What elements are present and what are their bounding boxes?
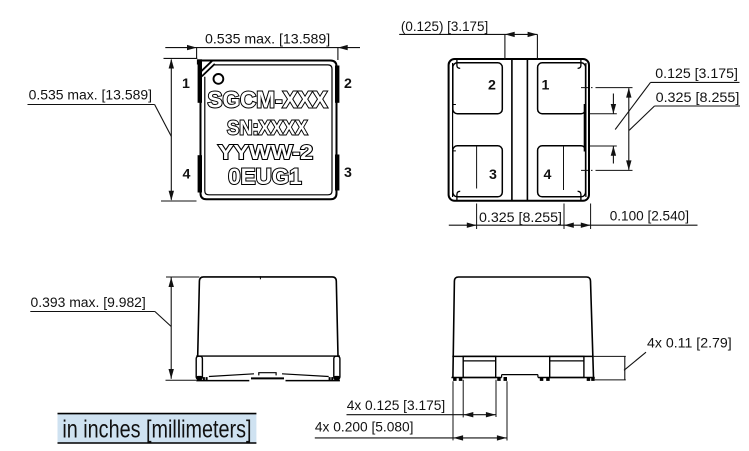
svg-text:0.393 max. [9.982]: 0.393 max. [9.982] [31,295,146,311]
svg-text:1: 1 [542,78,550,94]
svg-text:YYWW-2: YYWW-2 [218,142,313,164]
svg-text:4x 0.125 [3.175]: 4x 0.125 [3.175] [347,398,446,414]
svg-text:4x 0.200 [5.080]: 4x 0.200 [5.080] [315,420,414,436]
svg-text:SN:XXXX: SN:XXXX [227,118,308,140]
svg-text:0.535 max. [13.589]: 0.535 max. [13.589] [205,32,330,48]
svg-text:4: 4 [544,167,552,183]
svg-text:0EUG1: 0EUG1 [228,164,302,189]
svg-text:0.100 [2.540]: 0.100 [2.540] [610,208,689,224]
svg-text:0.325 [8.255]: 0.325 [8.255] [479,210,562,226]
svg-text:3: 3 [344,165,352,181]
svg-text:3: 3 [489,167,497,183]
svg-text:0.125 [3.175]: 0.125 [3.175] [655,66,738,82]
svg-text:in inches [millimeters]: in inches [millimeters] [62,415,251,443]
svg-text:0.325 [8.255]: 0.325 [8.255] [656,90,740,106]
svg-text:2: 2 [344,76,352,92]
svg-text:4x 0.11 [2.79]: 4x 0.11 [2.79] [647,335,732,351]
svg-text:2: 2 [488,78,496,94]
svg-text:SGCM-XXX: SGCM-XXX [208,87,329,113]
svg-text:1: 1 [182,76,190,92]
svg-text:(0.125) [3.175]: (0.125) [3.175] [401,19,488,35]
svg-text:4: 4 [183,167,191,183]
svg-text:0.535 max. [13.589]: 0.535 max. [13.589] [29,88,152,104]
